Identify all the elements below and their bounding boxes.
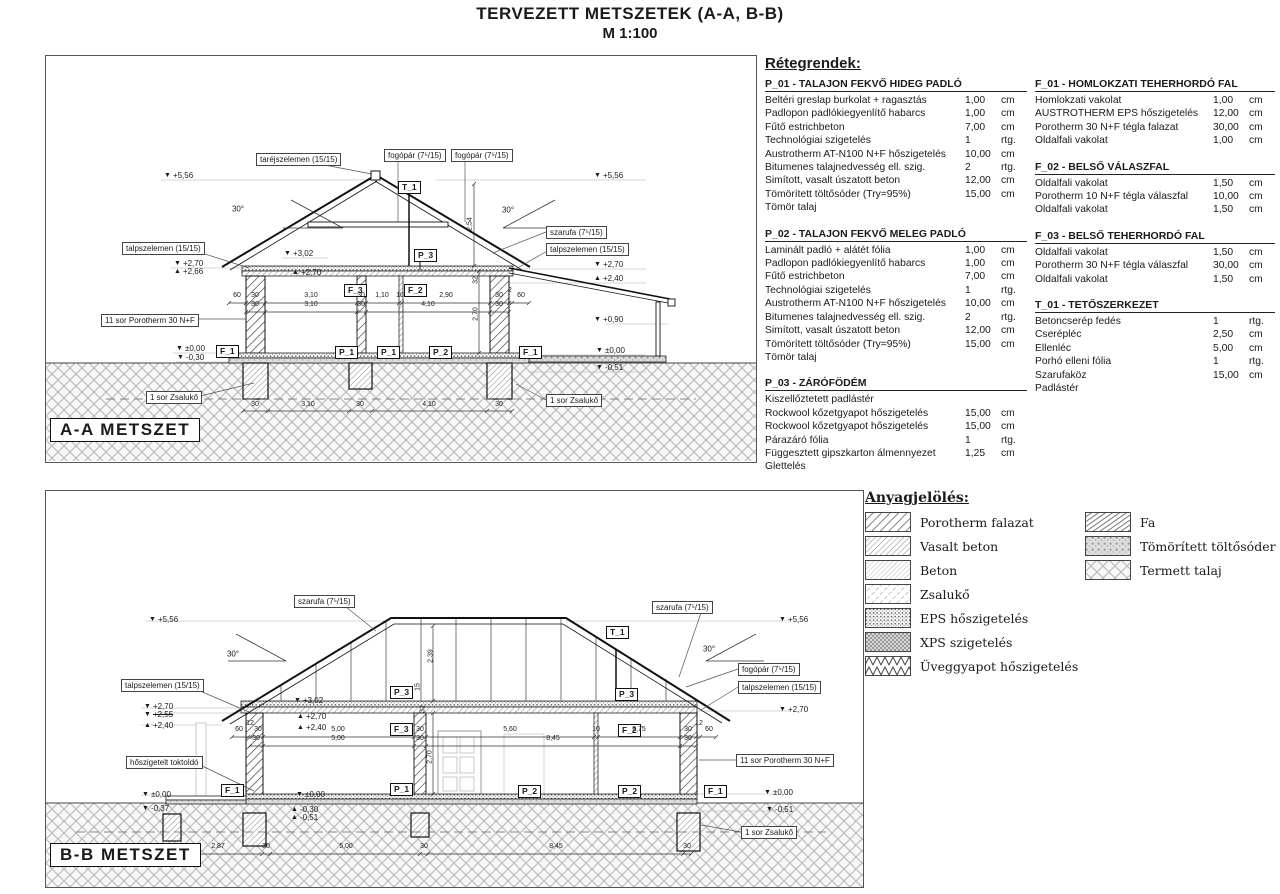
element-tag: P_1 <box>390 783 413 796</box>
layer-row-vl: 15,00 <box>965 188 1001 201</box>
section-a-panel: taréjszelemen (15/15)fogópár (7⁵/15)fogó… <box>45 55 757 463</box>
layer-row-nm: Oldalfali vakolat <box>1035 203 1213 216</box>
layer-row-nm: Tömörített töltősóder (Try=95%) <box>765 188 965 201</box>
layer-row-un: cm <box>1001 174 1027 187</box>
elevation-marker: ▼+0,90 <box>594 315 623 324</box>
layer-row-vl: 7,00 <box>965 121 1001 134</box>
dimension-text: 2 <box>508 287 512 294</box>
layer-row-vl <box>965 393 1001 406</box>
layer-row-nm: Padlopon padlókiegyenlítő habarcs <box>765 107 965 120</box>
elevation-marker: ▲+2,40 <box>594 274 623 283</box>
dimension-text: 1,10 <box>375 292 389 299</box>
vas-hatch-swatch <box>865 536 911 556</box>
layer-row-un: cm <box>1249 369 1275 382</box>
level-value: +5,56 <box>788 615 808 624</box>
layer-row-vl: 1 <box>965 284 1001 297</box>
level-triangle-icon: ▼ <box>142 805 149 813</box>
callout-label: szarufa (7⁵/15) <box>294 595 355 608</box>
layer-row-vl: 1,25 <box>965 447 1001 460</box>
layer-row-un <box>1249 382 1275 395</box>
layer-row-un: cm <box>1249 134 1275 147</box>
level-value: +2,70 <box>301 268 321 277</box>
layer-row-un: cm <box>1001 257 1027 270</box>
level-value: +2,40 <box>306 723 326 732</box>
layers-column-2: F_01 - HOMLOKZATI TEHERHORDÓ FALHomlokza… <box>1035 78 1275 409</box>
layer-row-nm: Oldalfali vakolat <box>1035 134 1213 147</box>
layer-row-un: cm <box>1249 342 1275 355</box>
element-tag: F_3 <box>390 723 413 736</box>
legend-item-label: EPS hőszigetelés <box>920 611 1028 626</box>
layer-row-un: cm <box>1249 121 1275 134</box>
element-tag: T_1 <box>606 626 629 639</box>
element-tag: T_1 <box>398 181 421 194</box>
legend-item: Vasalt beton <box>865 536 1078 556</box>
layer-row: Tömör talaj <box>765 351 1027 364</box>
layer-row-un: cm <box>1001 148 1027 161</box>
layer-row-un: cm <box>1001 324 1027 337</box>
dimension-text: 2,87 <box>211 843 225 850</box>
layer-row-vl: 2,50 <box>1213 328 1249 341</box>
slope-angle: 30° <box>232 205 244 214</box>
legend-item: Üveggyapot hőszigetelés <box>865 656 1078 676</box>
layer-section: F_03 - BELSŐ TEHERHORDÓ FALOldalfali vak… <box>1035 230 1275 286</box>
legend-item-label: Üveggyapot hőszigetelés <box>920 659 1078 674</box>
layer-row-nm: Simított, vasalt úszatott beton <box>765 324 965 337</box>
dimension-text: 60 <box>705 726 713 733</box>
elevation-marker: ▲+2,70 <box>297 712 326 721</box>
dimension-text: 5,00 <box>339 843 353 850</box>
callout-label: talpszelemen (15/15) <box>738 681 821 694</box>
layer-section-title: F_02 - BELSŐ VÁLASZFAL <box>1035 161 1275 175</box>
level-triangle-icon: ▼ <box>596 364 603 372</box>
layer-row-vl: 15,00 <box>1213 369 1249 382</box>
layer-row-un <box>1001 201 1027 214</box>
layer-row-un: cm <box>1001 244 1027 257</box>
level-triangle-icon: ▲ <box>291 814 298 822</box>
level-triangle-icon: ▼ <box>144 711 151 719</box>
layer-row: Beltéri greslap burkolat + ragasztás1,00… <box>765 94 1027 107</box>
layer-row-nm: Tömörített töltősóder (Try=95%) <box>765 338 965 351</box>
layer-row: Oldalfali vakolat1,50cm <box>1035 203 1275 216</box>
layer-row: Ellenléc5,00cm <box>1035 342 1275 355</box>
layer-row-un: cm <box>1249 273 1275 286</box>
element-tag: P_1 <box>377 346 400 359</box>
layer-row-vl: 12,00 <box>965 174 1001 187</box>
element-tag: P_3 <box>390 686 413 699</box>
layer-row-vl <box>965 201 1001 214</box>
dimension-text: 30 <box>684 726 692 733</box>
elevation-marker: ▼±0,00 <box>296 790 325 799</box>
dimension-text: 3,10 <box>304 301 318 308</box>
legend-item-label: Beton <box>920 563 957 578</box>
layer-row-un: cm <box>1249 190 1275 203</box>
layer-row-un: rtg. <box>1249 315 1275 328</box>
layer-row-nm: Technológiai szigetelés <box>765 284 965 297</box>
layer-section-title: P_03 - ZÁRÓFÖDÉM <box>765 377 1027 391</box>
callout-label: 1 sor Zsalukő <box>741 826 797 839</box>
layer-row-un: rtg. <box>1001 311 1027 324</box>
elevation-marker: ▼+2,55 <box>144 710 173 719</box>
dimension-text: 15 <box>415 683 422 691</box>
section-title: A-A METSZET <box>50 418 200 442</box>
layer-section: T_01 - TETŐSZERKEZETBetoncserép fedés1rt… <box>1035 299 1275 395</box>
level-triangle-icon: ▲ <box>174 268 181 276</box>
layer-row: Porhó elleni fólia1rtg. <box>1035 355 1275 368</box>
layer-row-nm: Porotherm 10 N+F tégla válaszfal <box>1035 190 1213 203</box>
layer-row: Szarufaköz15,00cm <box>1035 369 1275 382</box>
callout-label: 11 sor Porotherm 30 N+F <box>101 314 199 327</box>
layer-section-title: P_01 - TALAJON FEKVŐ HIDEG PADLÓ <box>765 78 1027 92</box>
layers-column-1: P_01 - TALAJON FEKVŐ HIDEG PADLÓBeltéri … <box>765 78 1027 487</box>
dimension-text: 2,75 <box>632 726 646 733</box>
layer-row: Porotherm 10 N+F tégla válaszfal10,00cm <box>1035 190 1275 203</box>
legend-item: EPS hőszigetelés <box>865 608 1078 628</box>
layer-row-un: cm <box>1001 270 1027 283</box>
level-value: +2,55 <box>153 710 173 719</box>
level-value: -0,51 <box>300 813 318 822</box>
layer-row-un: rtg. <box>1001 134 1027 147</box>
layer-row-un: cm <box>1249 259 1275 272</box>
dimension-text: 3,10 <box>301 401 315 408</box>
callout-label: taréjszelemen (15/15) <box>256 153 341 166</box>
layer-row: Bitumenes talajnedvesség ell. szig.2rtg. <box>765 311 1027 324</box>
dimension-text: 10 <box>396 292 404 299</box>
level-value: +3,02 <box>293 249 313 258</box>
elevation-marker: ▲+2,70 <box>292 268 321 277</box>
dimension-text: 5,60 <box>503 726 517 733</box>
element-tag: F_1 <box>216 345 239 358</box>
legend-item-label: Termett talaj <box>1140 563 1222 578</box>
layer-row-vl: 1,50 <box>1213 203 1249 216</box>
level-value: +5,56 <box>158 615 178 624</box>
layer-row-nm: Fűtő estrichbeton <box>765 121 965 134</box>
dimension-text: 2,70 <box>473 307 480 321</box>
callout-label: talpszelemen (15/15) <box>122 242 205 255</box>
layer-row: Tömörített töltősóder (Try=95%)15,00cm <box>765 188 1027 201</box>
materials-heading: Anyagjelölés: <box>865 490 969 506</box>
legend-item: Porotherm falazat <box>865 512 1078 532</box>
element-tag: F_1 <box>519 346 542 359</box>
layer-row-vl: 1 <box>965 434 1001 447</box>
dimension-text: 4,10 <box>422 401 436 408</box>
xps-hatch-swatch <box>865 632 911 652</box>
zsalu-hatch-swatch <box>865 584 911 604</box>
layer-row-nm: Rockwool kőzetgyapot hőszigetelés <box>765 420 965 433</box>
level-value: +2,40 <box>603 274 623 283</box>
layer-row: Simított, vasalt úszatott beton12,00cm <box>765 174 1027 187</box>
level-value: +2,66 <box>183 267 203 276</box>
level-triangle-icon: ▼ <box>149 616 156 624</box>
dimension-text: 30 <box>357 301 365 308</box>
slope-angle: 30° <box>227 650 239 659</box>
elevation-marker: ▼+5,56 <box>779 615 808 624</box>
layer-row-vl: 1 <box>1213 355 1249 368</box>
layer-section-title: P_02 - TALAJON FEKVŐ MELEG PADLÓ <box>765 228 1027 242</box>
level-triangle-icon: ▼ <box>766 806 773 814</box>
level-value: +2,40 <box>153 721 173 730</box>
level-triangle-icon: ▲ <box>297 713 304 721</box>
dimension-text: 5,00 <box>331 735 345 742</box>
beton-hatch-swatch <box>865 560 911 580</box>
elevation-marker: ▼+2,70 <box>779 705 808 714</box>
level-value: +3,02 <box>303 696 323 705</box>
element-tag: F_1 <box>704 785 727 798</box>
elevation-marker: ▼±0,00 <box>764 788 793 797</box>
dimension-text: 30 <box>683 843 691 850</box>
dimension-text: 2,90 <box>439 292 453 299</box>
elevation-marker: ▼±0,00 <box>596 346 625 355</box>
dimension-text: 30 <box>495 301 503 308</box>
layer-section-title: F_01 - HOMLOKZATI TEHERHORDÓ FAL <box>1035 78 1275 92</box>
layer-row-un: cm <box>1001 94 1027 107</box>
level-triangle-icon: ▼ <box>764 789 771 797</box>
layer-row-nm: Austrotherm AT-N100 N+F hőszigetelés <box>765 148 965 161</box>
element-tag: P_2 <box>518 785 541 798</box>
legend-item: Zsalukő <box>865 584 1078 604</box>
layer-row-nm: Tömör talaj <box>765 351 965 364</box>
legend-item-label: Vasalt beton <box>920 539 998 554</box>
level-triangle-icon: ▼ <box>164 172 171 180</box>
elevation-marker: ▲+2,66 <box>174 267 203 276</box>
level-value: -0,37 <box>151 804 169 813</box>
layer-row-vl: 15,00 <box>965 420 1001 433</box>
element-tag: P_2 <box>429 346 452 359</box>
legend-item: Fa <box>1085 512 1276 532</box>
dimension-text: 30 <box>356 401 364 408</box>
layer-row: AUSTROTHERM EPS hőszigetelés12,00cm <box>1035 107 1275 120</box>
dimension-text: 3,10 <box>304 292 318 299</box>
fa-hatch-swatch <box>1085 512 1131 532</box>
elevation-marker: ▼+5,56 <box>594 171 623 180</box>
layer-row: Tömörített töltősóder (Try=95%)15,00cm <box>765 338 1027 351</box>
level-value: ±0,00 <box>605 346 625 355</box>
layer-row-un: cm <box>1001 297 1027 310</box>
level-value: ±0,00 <box>151 790 171 799</box>
layer-row-vl <box>965 460 1001 473</box>
soder-hatch-swatch <box>1085 536 1131 556</box>
dimension-text: 12 <box>695 720 703 727</box>
layer-row-un: rtg. <box>1249 355 1275 368</box>
callout-label: fogópár (7⁵/15) <box>451 149 513 162</box>
layer-row-un: cm <box>1249 177 1275 190</box>
layer-row: Fűtő estrichbeton7,00cm <box>765 121 1027 134</box>
layer-row-un <box>1001 460 1027 473</box>
layer-row: Technológiai szigetelés1rtg. <box>765 134 1027 147</box>
legend-item-label: Tömörített töltősóder <box>1140 539 1276 554</box>
layer-row-nm: Padlástér <box>1035 382 1213 395</box>
layer-row-nm: Laminált padló + alátét fólia <box>765 244 965 257</box>
level-triangle-icon: ▲ <box>297 724 304 732</box>
layer-row: Porotherm 30 N+F tégla válaszfal30,00cm <box>1035 259 1275 272</box>
layer-row-vl <box>965 351 1001 364</box>
elevation-marker: ▼±0,00 <box>176 344 205 353</box>
elevation-marker: ▼+3,02 <box>294 696 323 705</box>
layer-row-nm: Ellenléc <box>1035 342 1213 355</box>
layer-row-un <box>1001 351 1027 364</box>
layer-row-un: cm <box>1001 420 1027 433</box>
layer-row-vl: 15,00 <box>965 338 1001 351</box>
elevation-marker: ▼-0,51 <box>766 805 793 814</box>
layer-section: F_02 - BELSŐ VÁLASZFALOldalfali vakolat1… <box>1035 161 1275 217</box>
layer-row-vl: 12,00 <box>1213 107 1249 120</box>
layer-row-vl: 1,50 <box>1213 177 1249 190</box>
layer-row-vl: 1 <box>965 134 1001 147</box>
level-value: +2,70 <box>788 705 808 714</box>
level-triangle-icon: ▼ <box>284 250 291 258</box>
elevation-marker: ▲-0,51 <box>291 813 318 822</box>
element-tag: P_3 <box>615 688 638 701</box>
callout-label: 1 sor Zsalukő <box>546 394 602 407</box>
layer-row-un: cm <box>1001 107 1027 120</box>
layer-row-un: cm <box>1001 188 1027 201</box>
layer-row-un: cm <box>1001 338 1027 351</box>
level-triangle-icon: ▼ <box>294 697 301 705</box>
dimension-text: 60 <box>235 726 243 733</box>
level-value: ±0,00 <box>773 788 793 797</box>
layer-row-nm: AUSTROTHERM EPS hőszigetelés <box>1035 107 1213 120</box>
layer-row-un: cm <box>1249 107 1275 120</box>
layer-row: Austrotherm AT-N100 N+F hőszigetelés10,0… <box>765 148 1027 161</box>
level-value: +2,70 <box>306 712 326 721</box>
level-triangle-icon: ▼ <box>594 172 601 180</box>
legend-item-label: XPS szigetelés <box>920 635 1012 650</box>
layer-row: Cserépléc2,50cm <box>1035 328 1275 341</box>
layer-row-nm: Padlopon padlókiegyenlítő habarcs <box>765 257 965 270</box>
layer-section: F_01 - HOMLOKZATI TEHERHORDÓ FALHomlokza… <box>1035 78 1275 148</box>
layer-section-title: T_01 - TETŐSZERKEZET <box>1035 299 1275 313</box>
layer-row-nm: Bitumenes talajnedvesség ell. szig. <box>765 311 965 324</box>
level-value: -0,51 <box>775 805 793 814</box>
layer-row-nm: Függesztett gipszkarton álmennyezet <box>765 447 965 460</box>
callout-label: fogópár (7⁵/15) <box>384 149 446 162</box>
elevation-marker: ▲+2,40 <box>297 723 326 732</box>
layer-row-nm: Oldalfali vakolat <box>1035 246 1213 259</box>
elevation-marker: ▼-0,37 <box>142 804 169 813</box>
layer-row-vl: 1,00 <box>965 244 1001 257</box>
layer-row: Porotherm 30 N+F tégla falazat30,00cm <box>1035 121 1275 134</box>
layer-row-vl: 1,00 <box>1213 94 1249 107</box>
level-triangle-icon: ▲ <box>292 269 299 277</box>
materials-column-2: FaTömörített töltősóderTermett talaj <box>1085 512 1276 584</box>
eps-hatch-swatch <box>865 608 911 628</box>
layer-row-nm: Technológiai szigetelés <box>765 134 965 147</box>
layer-row: Homlokzati vakolat1,00cm <box>1035 94 1275 107</box>
dimension-text: 8,45 <box>549 843 563 850</box>
talaj-hatch-swatch <box>1085 560 1131 580</box>
callout-label: szarufa (7⁵/15) <box>546 226 607 239</box>
dimension-text: 30 <box>262 843 270 850</box>
layer-row-nm: Porhó elleni fólia <box>1035 355 1213 368</box>
layer-row-nm: Fűtő estrichbeton <box>765 270 965 283</box>
layer-row-nm: Rockwool kőzetgyapot hőszigetelés <box>765 407 965 420</box>
layer-row: Oldalfali vakolat1,00cm <box>1035 134 1275 147</box>
layer-row: Bitumenes talajnedvesség ell. szig.2rtg. <box>765 161 1027 174</box>
layer-row-nm: Párazáró fólia <box>765 434 965 447</box>
layer-row-vl: 7,00 <box>965 270 1001 283</box>
dimension-text: 12 <box>246 720 254 727</box>
poro-hatch-swatch <box>865 512 911 532</box>
dimension-text: 10 <box>592 726 600 733</box>
dimension-text: 30 <box>254 726 262 733</box>
legend-item: Beton <box>865 560 1078 580</box>
drawing-sheet: TERVEZETT METSZETEK (A-A, B-B) M 1:100 <box>0 0 1280 894</box>
dimension-text: 2,54 <box>467 217 474 231</box>
dimension-text: 60 <box>517 292 525 299</box>
legend-item-label: Zsalukő <box>920 587 970 602</box>
layer-row: Oldalfali vakolat1,50cm <box>1035 246 1275 259</box>
layer-row-vl: 30,00 <box>1213 259 1249 272</box>
dimension-text: 30 <box>252 735 260 742</box>
layer-row: Betoncserép fedés1rtg. <box>1035 315 1275 328</box>
layer-row-nm: Szarufaköz <box>1035 369 1213 382</box>
layer-row-nm: Simított, vasalt úszatott beton <box>765 174 965 187</box>
layer-row-vl: 1,00 <box>1213 134 1249 147</box>
callout-label: fogópár (7⁵/15) <box>738 663 800 676</box>
layer-row-un: cm <box>1249 94 1275 107</box>
layer-row-nm: Betoncserép fedés <box>1035 315 1213 328</box>
dimension-text: 30 <box>495 401 503 408</box>
level-triangle-icon: ▼ <box>779 616 786 624</box>
slope-angle: 30° <box>502 206 514 215</box>
legend-item-label: Porotherm falazat <box>920 515 1034 530</box>
layer-row-vl: 1,00 <box>965 94 1001 107</box>
dimension-text: 30 <box>357 292 365 299</box>
elevation-marker: ▼-0,30 <box>177 353 204 362</box>
elevation-marker: ▲+2,40 <box>144 721 173 730</box>
section-b-panel: szarufa (7⁵/15)szarufa (7⁵/15)fogópár (7… <box>45 490 864 888</box>
callout-label: szarufa (7⁵/15) <box>652 601 713 614</box>
dimension-text: 32 <box>420 705 427 713</box>
layer-row: Fűtő estrichbeton7,00cm <box>765 270 1027 283</box>
layer-row-vl: 5,00 <box>1213 342 1249 355</box>
layer-row: Kiszellőztetett padlástér <box>765 393 1027 406</box>
layer-row-un: cm <box>1249 203 1275 216</box>
elevation-marker: ▼±0,00 <box>142 790 171 799</box>
level-triangle-icon: ▼ <box>176 345 183 353</box>
layer-row: Tömör talaj <box>765 201 1027 214</box>
dimension-text: 30 <box>416 735 424 742</box>
section-title: B-B METSZET <box>50 843 201 867</box>
level-value: -0,51 <box>605 363 623 372</box>
elevation-marker: ▼-0,51 <box>596 363 623 372</box>
layer-row-vl: 1,00 <box>965 257 1001 270</box>
glass-hatch-swatch <box>865 656 911 676</box>
legend-item: Termett talaj <box>1085 560 1276 580</box>
layer-row-vl: 10,00 <box>965 148 1001 161</box>
dimension-text: 30 <box>684 735 692 742</box>
dimension-text: 2,70 <box>427 750 434 764</box>
layer-row-vl: 30,00 <box>1213 121 1249 134</box>
level-triangle-icon: ▼ <box>596 347 603 355</box>
layer-section: P_01 - TALAJON FEKVŐ HIDEG PADLÓBeltéri … <box>765 78 1027 215</box>
layer-section-title: F_03 - BELSŐ TEHERHORDÓ FAL <box>1035 230 1275 244</box>
legend-item: XPS szigetelés <box>865 632 1078 652</box>
layer-row: Oldalfali vakolat1,50cm <box>1035 273 1275 286</box>
layer-row-nm: Homlokzati vakolat <box>1035 94 1213 107</box>
layer-row: Laminált padló + alátét fólia1,00cm <box>765 244 1027 257</box>
layer-row-vl: 1,50 <box>1213 273 1249 286</box>
layer-section: P_03 - ZÁRÓFÖDÉMKiszellőztetett padlásté… <box>765 377 1027 473</box>
element-tag: P_2 <box>618 785 641 798</box>
layer-row-vl: 12,00 <box>965 324 1001 337</box>
callout-label: talpszelemen (15/15) <box>121 679 204 692</box>
layer-row-nm: Beltéri greslap burkolat + ragasztás <box>765 94 965 107</box>
layer-row: Austrotherm AT-N100 N+F hőszigetelés10,0… <box>765 297 1027 310</box>
sheet-scale: M 1:100 <box>360 25 900 42</box>
element-tag: P_3 <box>414 249 437 262</box>
layer-row-vl: 2 <box>965 311 1001 324</box>
legend-item-label: Fa <box>1140 515 1155 530</box>
